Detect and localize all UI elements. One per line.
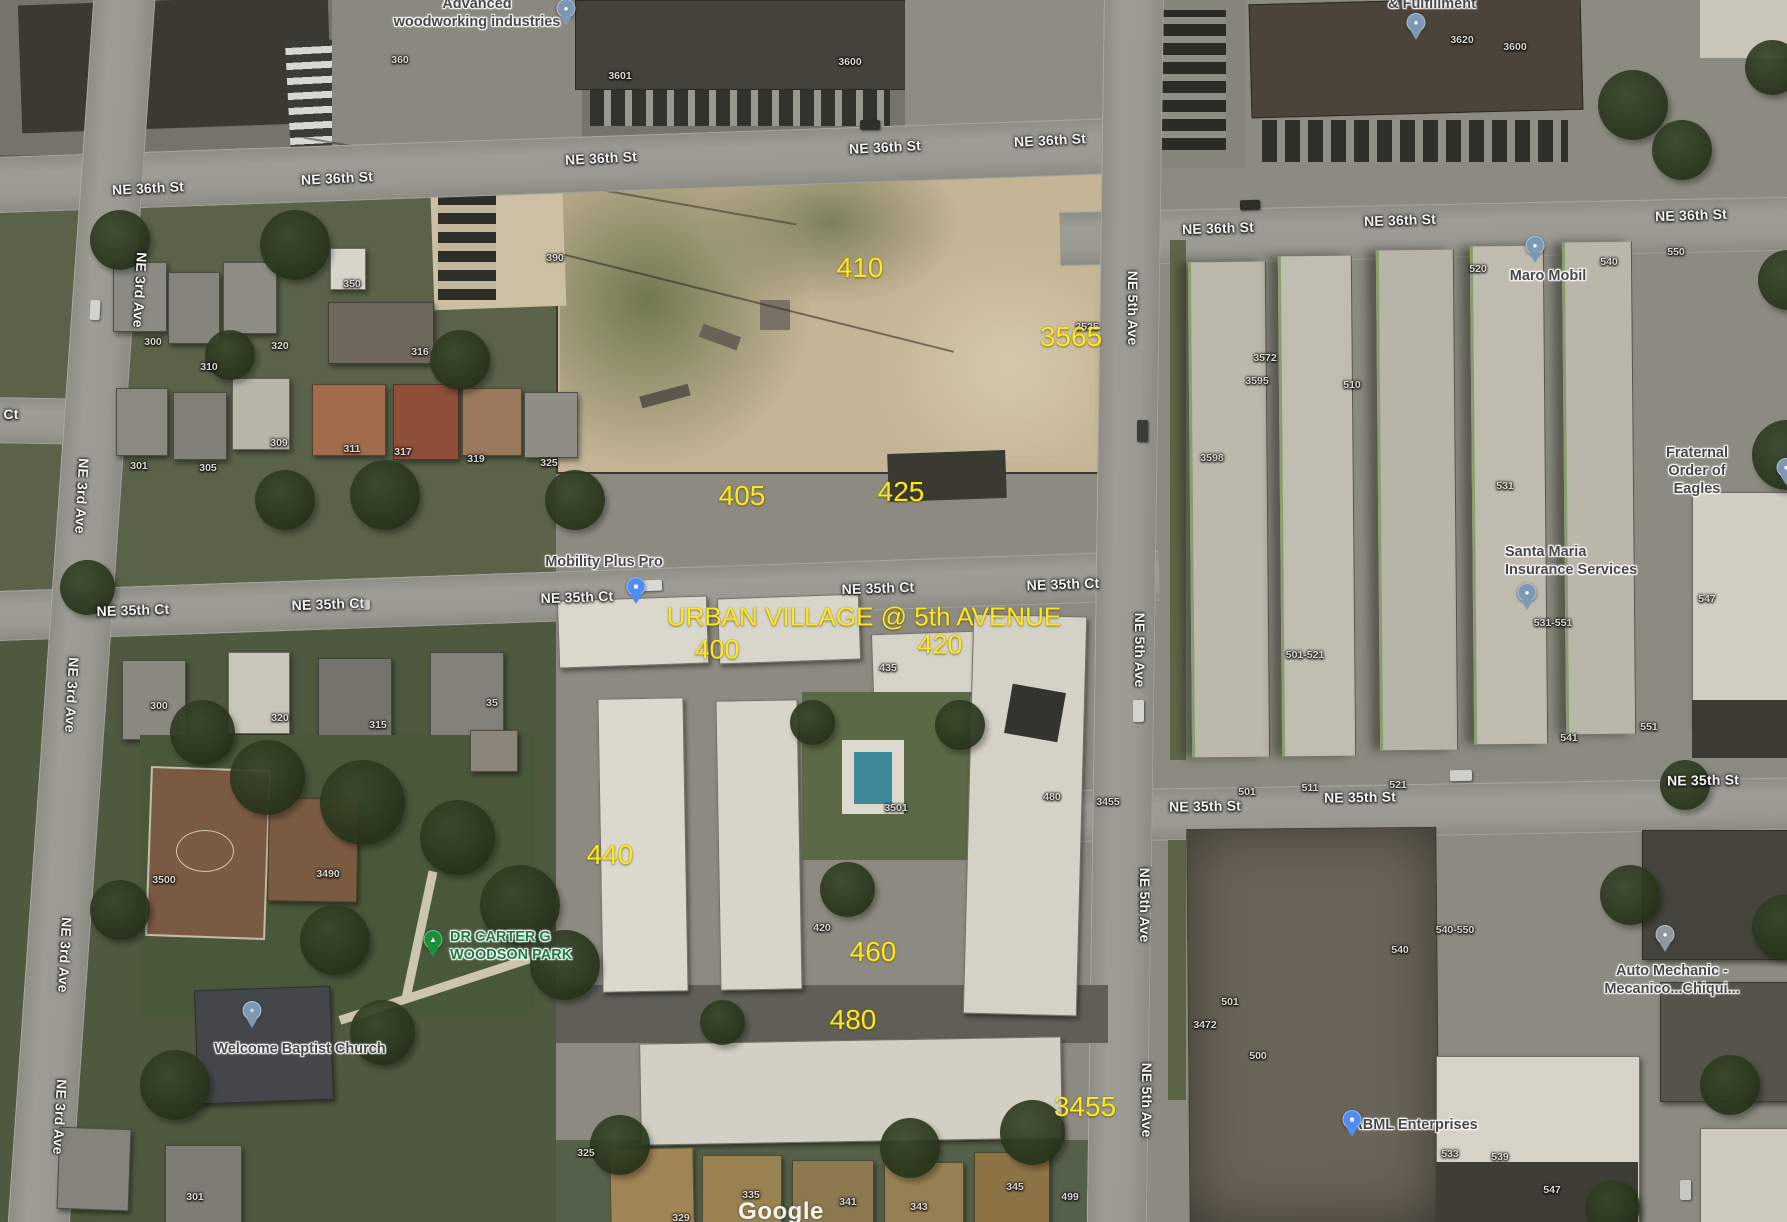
map-terrain-feature	[176, 830, 234, 872]
map-terrain-feature	[168, 272, 220, 344]
map-terrain-feature	[230, 740, 305, 815]
pin-icon: ●	[564, 5, 569, 13]
parcel-number: 300	[150, 700, 168, 712]
parcel-number: 329	[672, 1212, 690, 1222]
auto-mechanic-label[interactable]: Auto Mechanic - Mecanico...Chiqui...	[1604, 962, 1739, 998]
fulfillment-pin[interactable]: ●	[1406, 13, 1426, 40]
parcel-number: 3572	[1253, 352, 1276, 364]
map-terrain-feature	[255, 470, 315, 530]
parcel-number: 500	[1249, 1050, 1267, 1062]
parcel-number: 317	[394, 446, 412, 458]
map-terrain-feature	[318, 658, 392, 744]
pin-tail	[1521, 600, 1533, 610]
parcel-number: 3472	[1193, 1019, 1216, 1031]
parcel-number: 309	[270, 437, 288, 449]
woodson-park-pin[interactable]: ▲	[423, 930, 443, 957]
map-terrain-feature	[57, 1127, 132, 1211]
map-terrain-feature	[223, 262, 277, 334]
parcel-number: 539	[1491, 1151, 1509, 1163]
parcel-number: 501-521	[1286, 649, 1325, 661]
parcel-number: 531	[1496, 480, 1514, 492]
santa-maria-insurance-pin[interactable]: ●	[1517, 583, 1537, 610]
parcel-number: 511	[1302, 782, 1319, 794]
street-label-ne-35th-ct: NE 35th Ct	[540, 588, 613, 607]
fraternal-order-of-eagles-pin[interactable]: ●	[1776, 458, 1787, 485]
parcel-number: 521	[1389, 779, 1407, 791]
map-terrain-feature	[524, 392, 578, 458]
parcel-number: 319	[467, 453, 485, 465]
parcel-number: 499	[1061, 1191, 1079, 1203]
pin-icon: ■	[634, 583, 639, 591]
pin-icon: ▲	[429, 936, 437, 944]
pin-tail	[1410, 30, 1422, 40]
map-terrain-feature	[1692, 700, 1787, 758]
map-terrain-feature	[430, 330, 490, 390]
map-terrain-feature	[1562, 242, 1636, 735]
map-terrain-feature	[462, 388, 522, 456]
parcel-number: 501	[1221, 996, 1239, 1008]
annotation-480: 480	[830, 1004, 877, 1036]
welcome-baptist-church-label[interactable]: Welcome Baptist Church	[214, 1040, 385, 1058]
annotation-405: 405	[719, 480, 766, 512]
map-terrain-feature	[1680, 1180, 1691, 1200]
map-terrain-feature	[116, 388, 168, 456]
map-terrain-feature	[854, 752, 892, 804]
street-label-ne-5th-ave: NE 5th Ave	[1132, 613, 1148, 688]
parcel-number: 390	[546, 252, 564, 264]
parcel-number: 540	[1600, 256, 1618, 268]
auto-mechanic-pin[interactable]: ●	[1655, 925, 1675, 952]
map-terrain-feature	[300, 905, 370, 975]
map-terrain-feature	[1186, 827, 1439, 1222]
map-terrain-feature	[89, 300, 100, 320]
parcel-number: 547	[1543, 1184, 1561, 1196]
parcel-number: 541	[1560, 732, 1578, 744]
parcel-number: 550	[1667, 246, 1685, 258]
pin-tail	[427, 947, 439, 957]
parcel-number: 320	[271, 712, 289, 724]
pin-tail	[1346, 1127, 1358, 1137]
street-label-ne-36th-st: NE 36th St	[1364, 211, 1437, 230]
map-terrain-feature	[935, 700, 985, 750]
pin-tail	[560, 16, 572, 26]
parcel-number: 3601	[608, 70, 631, 82]
map-terrain-feature	[1240, 200, 1260, 211]
parcel-number: 3595	[1245, 375, 1268, 387]
map-terrain-feature	[1700, 1055, 1760, 1115]
parcel-number: 3500	[152, 874, 175, 886]
map-terrain-feature	[1692, 492, 1787, 726]
map-terrain-feature	[1278, 256, 1356, 757]
map-terrain-feature	[1188, 262, 1270, 758]
pin-tail	[246, 1018, 258, 1028]
map-terrain-feature	[350, 460, 420, 530]
abml-enterprises-label[interactable]: ABML Enterprises	[1352, 1116, 1477, 1134]
street-label-ne-36th-st: NE 36th St	[1182, 219, 1255, 238]
map-terrain-feature	[880, 250, 1095, 462]
map-terrain-feature	[320, 760, 405, 845]
map-terrain-feature	[880, 1118, 940, 1178]
woodson-park-label[interactable]: DR CARTER G WOODSON PARK	[450, 928, 572, 964]
parcel-number: 360	[391, 54, 409, 66]
map-terrain-feature	[140, 1050, 210, 1120]
street-label-ne-35th-st: NE 35th St	[1169, 797, 1241, 814]
map-terrain-feature	[1600, 865, 1660, 925]
map-terrain-feature	[1700, 1128, 1787, 1222]
fraternal-order-of-eagles-label[interactable]: Fraternal Order of Eagles	[1652, 444, 1742, 498]
parcel-number: 435	[879, 662, 897, 674]
mobility-plus-pro-label[interactable]: Mobility Plus Pro	[545, 553, 663, 571]
street-label-ne-36th-st: NE 36th St	[1655, 206, 1728, 225]
parcel-number: 343	[910, 1201, 928, 1213]
pin-icon: ●	[1533, 242, 1538, 250]
map-terrain-feature	[545, 470, 605, 530]
map-terrain-feature	[1376, 250, 1458, 751]
pin-icon: ●	[1525, 589, 1530, 597]
parcel-number: 325	[577, 1147, 595, 1159]
map-terrain-feature	[438, 180, 496, 300]
pin-icon: +	[250, 1007, 255, 1015]
map-terrain-feature	[700, 1000, 745, 1045]
parcel-number: 540-550	[1436, 924, 1475, 936]
map-terrain-feature	[165, 1145, 242, 1222]
parcel-number: 35	[486, 697, 498, 709]
street-label-ne-35th-ct: NE 35th Ct	[841, 579, 914, 598]
street-label-ct-partial: Ct	[3, 406, 18, 422]
street-label-ne-35th-ct: NE 35th Ct	[1026, 575, 1099, 594]
street-label-ne-35th-st: NE 35th St	[1324, 788, 1396, 805]
map-terrain-feature	[1262, 120, 1568, 162]
pin-icon: ■	[1350, 1116, 1355, 1124]
map-terrain-feature	[470, 730, 518, 772]
abml-enterprises-pin[interactable]: ■	[1342, 1110, 1362, 1137]
map-terrain-feature	[18, 0, 332, 133]
pin-icon: ●	[1663, 931, 1668, 939]
parcel-number: 310	[200, 361, 218, 373]
satellite-map[interactable]: NE 36th StNE 36th StNE 36th StNE 36th St…	[0, 0, 1787, 1222]
parcel-number: 305	[199, 462, 217, 474]
map-terrain-feature	[1470, 246, 1548, 745]
map-terrain-feature	[1133, 700, 1144, 722]
parcel-number: 3455	[1096, 796, 1119, 808]
map-terrain-feature	[1170, 240, 1186, 760]
annotation-440: 440	[587, 839, 634, 871]
street-label-ne-5th-ave: NE 5th Ave	[1139, 1063, 1155, 1138]
parcel-number: 350	[343, 278, 361, 290]
parcel-number: 547	[1698, 593, 1716, 605]
parcel-number: 316	[411, 346, 429, 358]
map-terrain-feature	[820, 862, 875, 917]
street-label-ne-35th-ct: NE 35th Ct	[96, 601, 169, 620]
pin-icon: ●	[1784, 464, 1787, 472]
street-label-ne-35th-st: NE 35th St	[1667, 771, 1739, 788]
map-terrain-feature	[790, 700, 835, 745]
street-label-ne-5th-ave: NE 5th Ave	[1137, 868, 1153, 943]
parcel-number: 510	[1343, 379, 1361, 391]
pin-icon: ●	[1414, 19, 1419, 27]
map-terrain-feature	[860, 120, 880, 130]
santa-maria-insurance-label[interactable]: Santa Maria Insurance Services	[1505, 543, 1637, 579]
parcel-number: 3600	[838, 56, 861, 68]
annotation-3565: 3565	[1040, 321, 1102, 353]
annotation-460: 460	[850, 936, 897, 968]
map-terrain-feature	[590, 1115, 650, 1175]
map-terrain-feature	[420, 800, 495, 875]
street-label-ne-5th-ave: NE 5th Ave	[1125, 271, 1141, 346]
map-terrain-feature	[1168, 840, 1186, 1100]
map-terrain-feature	[590, 90, 890, 126]
maro-mobil-label[interactable]: Maro Mobil	[1510, 267, 1587, 285]
map-terrain-feature	[715, 699, 802, 990]
annotation-425: 425	[878, 476, 925, 508]
parcel-number: 540	[1391, 944, 1409, 956]
map-terrain-feature	[1004, 684, 1066, 743]
annotation-3455: 3455	[1054, 1091, 1116, 1123]
pin-tail	[1659, 942, 1671, 952]
map-terrain-feature	[170, 700, 235, 765]
mobility-plus-pro-pin[interactable]: ■	[626, 577, 646, 604]
parcel-number: 325	[540, 457, 558, 469]
map-terrain-feature	[173, 392, 227, 460]
pin-tail	[630, 594, 642, 604]
map-terrain-feature	[260, 210, 330, 280]
parcel-number: 520	[1469, 263, 1487, 275]
parcel-number: 300	[144, 336, 162, 348]
parcel-number: 341	[839, 1196, 857, 1208]
parcel-number: 533	[1441, 1148, 1459, 1160]
advanced-woodworking-pin[interactable]: ●	[556, 0, 576, 26]
map-terrain-feature	[1137, 420, 1148, 442]
parcel-number: 531-551	[1534, 617, 1573, 629]
parcel-number: 501	[1238, 786, 1256, 798]
map-terrain-feature	[430, 652, 504, 738]
fulfillment-label[interactable]: & Fulfillment	[1388, 0, 1476, 13]
maro-mobil-pin[interactable]: ●	[1525, 236, 1545, 263]
map-terrain-feature	[1652, 120, 1712, 180]
parcel-number: 301	[186, 1191, 204, 1203]
parcel-number: 3501	[884, 802, 907, 814]
parcel-number: 3600	[1503, 41, 1526, 53]
google-watermark: Google	[738, 1198, 824, 1222]
parcel-number: 301	[130, 460, 148, 472]
parcel-number: 480	[1043, 791, 1061, 803]
welcome-baptist-church-pin[interactable]: +	[242, 1001, 262, 1028]
parcel-number: 320	[271, 340, 289, 352]
map-terrain-feature	[1450, 770, 1472, 781]
pin-tail	[1529, 253, 1541, 263]
advanced-woodworking-label[interactable]: Advanced woodworking industries	[394, 0, 561, 31]
street-label-ne-35th-ct: NE 35th Ct	[291, 595, 364, 614]
map-terrain-feature	[90, 880, 150, 940]
parcel-number: 551	[1640, 721, 1658, 733]
parcel-number: 345	[1006, 1181, 1024, 1193]
annotation-410: 410	[837, 252, 884, 284]
annotation-420: 420	[917, 630, 962, 661]
annotation-urban-village: URBAN VILLAGE @ 5th AVENUE	[667, 602, 1061, 633]
map-terrain-feature	[1598, 70, 1668, 140]
map-terrain-feature	[963, 614, 1087, 1017]
parcel-number: 3490	[316, 868, 339, 880]
parcel-number: 420	[813, 922, 831, 934]
parcel-number: 311	[344, 443, 361, 455]
annotation-400: 400	[694, 635, 739, 666]
parcel-number: 3620	[1450, 34, 1473, 46]
parcel-number: 3598	[1200, 452, 1223, 464]
parcel-number: 315	[369, 719, 387, 731]
pin-tail	[1780, 475, 1787, 485]
